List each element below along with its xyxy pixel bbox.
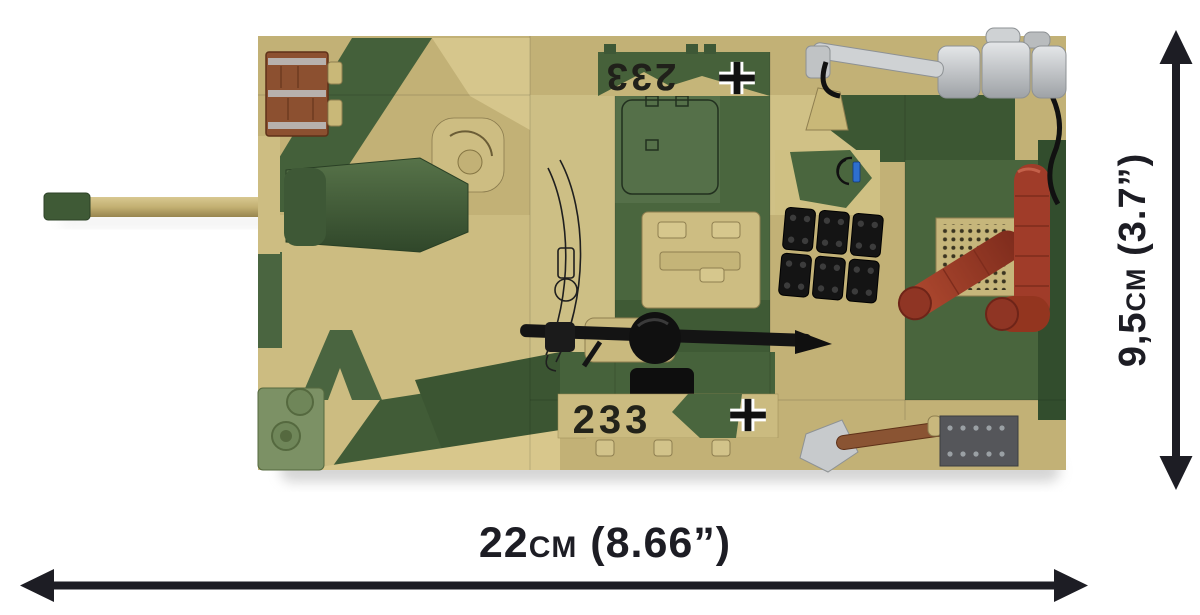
height-dimension-arrow bbox=[1160, 30, 1193, 490]
width-dimension-arrow bbox=[20, 569, 1088, 602]
width-dimension-label: 22cm (8.66”) bbox=[0, 519, 1200, 568]
product-dimension-figure: 233 233 22cm (8.66”) 9,5cm (3.7”) bbox=[0, 0, 1200, 615]
height-dimension-label: 9,5cm (3.7”) bbox=[1110, 110, 1156, 410]
